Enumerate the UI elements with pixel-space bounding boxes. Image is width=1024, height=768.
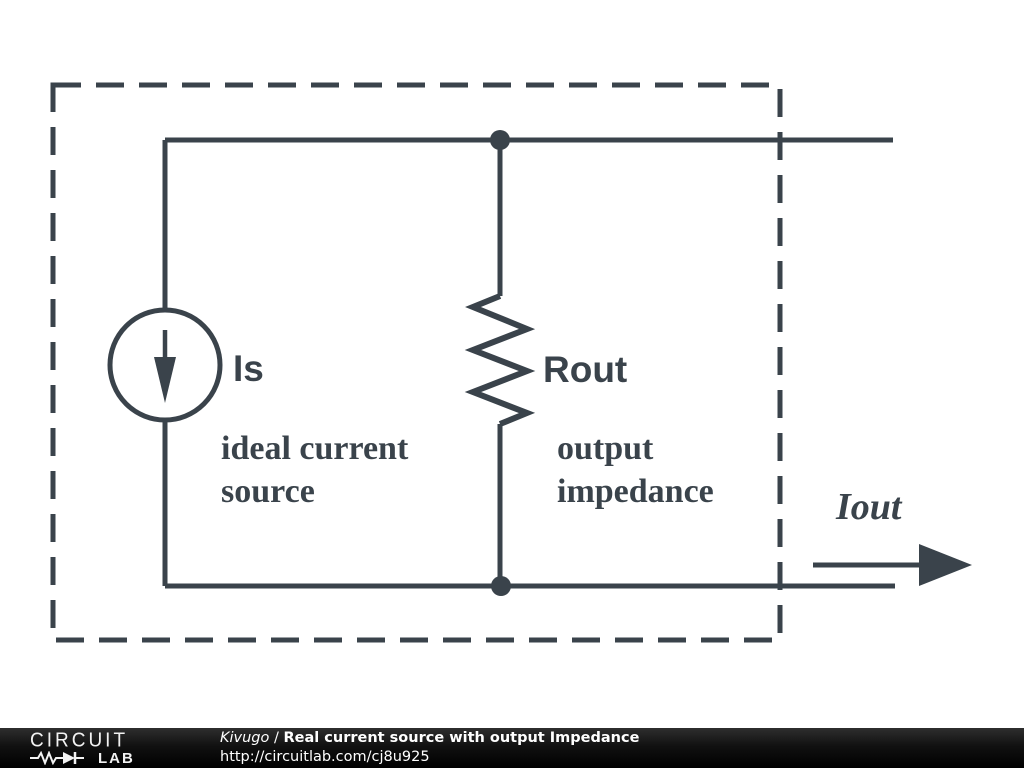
resistor-caption-line2: impedance [557,473,714,510]
circuitlab-logo: CIRCUIT LAB [30,731,140,766]
footer-bar: CIRCUIT LAB Kivugo / Real current source… [0,728,1024,768]
schematic-title: Real current source with output Impedanc… [284,730,640,746]
source-caption-line1: ideal current [221,430,409,467]
resistor-caption-line1: output [557,430,654,467]
current-arrow-head [154,357,176,403]
junction-dot-bottom [491,576,511,596]
author-name: Kivugo [220,730,269,746]
schematic-url: http://circuitlab.com/cj8u925 [220,748,639,767]
resistor-symbol [473,296,527,424]
logo-text-lab: LAB [98,751,135,766]
source-caption-line2: source [221,473,315,510]
separator: / [269,730,283,746]
circuit-diagram: Is Rout ideal current source output impe… [0,0,1024,728]
schematic-canvas: Is Rout ideal current source output impe… [0,0,1024,768]
junction-dot-top [490,130,510,150]
iout-arrow-head [919,544,972,586]
schematic-attribution: Kivugo / Real current source with output… [220,729,639,767]
output-current-label: Iout [835,486,903,528]
logo-text-circuit: CIRCUIT [30,730,140,750]
resistor-label: Rout [543,349,627,390]
attribution-title-line: Kivugo / Real current source with output… [220,729,639,748]
current-source-label: Is [233,348,264,389]
resistor-diode-icon [30,751,96,765]
